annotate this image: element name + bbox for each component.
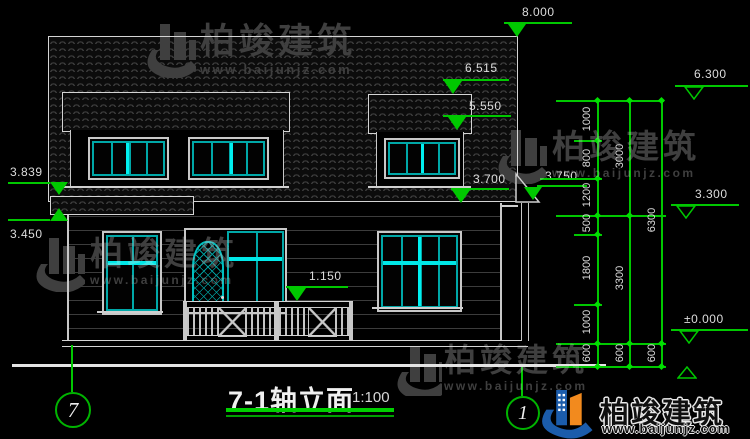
dimension-line (8, 182, 50, 184)
dimension-tick (594, 301, 601, 308)
right-corner-post (521, 203, 529, 341)
dimension-tick (626, 212, 633, 219)
x-panel (308, 307, 337, 337)
window (188, 137, 269, 180)
balusters (245, 307, 274, 335)
elevation-arrow (452, 190, 470, 203)
dim-label: 6300 (646, 198, 658, 242)
dim-label: 500 (581, 201, 593, 245)
dim-label: 1800 (581, 246, 593, 290)
dormer-left-sill (62, 186, 289, 188)
brand-logo-icon (534, 388, 598, 439)
window-glass (92, 141, 165, 176)
axis-bubble-7: 7 (55, 392, 91, 428)
elevation-arrow (448, 117, 466, 130)
brand-logo-url: www.baijunjz.com (602, 421, 730, 436)
window (377, 231, 462, 312)
watermark: 柏竣建筑 www.baijunjz.com (444, 344, 588, 393)
left-canopy (50, 196, 194, 215)
watermark-logo-icon (388, 342, 442, 396)
elevation-marker-canopy-top: 3.839 (10, 165, 43, 179)
drawing-title: 7-1轴立面 (228, 379, 354, 418)
window-sill (372, 307, 463, 309)
elevation-arrow (50, 182, 68, 195)
watermark (138, 20, 196, 83)
elevation-arrow (444, 81, 462, 94)
dimension-tick (594, 212, 601, 219)
elevation-marker-dormer-top: 6.515 (465, 61, 498, 75)
window-glass (381, 235, 458, 308)
dimension-tick (594, 97, 601, 104)
window-glass (388, 142, 456, 175)
elevation-drawing: 8.000 6.515 5.550 3.700 3.750 3.839 3.45… (0, 0, 750, 439)
dim-label: 3300 (614, 256, 626, 300)
elevation-arrow (508, 24, 526, 37)
elevation-marker-dormer-eave: 5.550 (469, 99, 502, 113)
title-underline (226, 408, 394, 412)
dimension-line (8, 219, 50, 221)
railing-post (183, 302, 187, 342)
dimension-tick (658, 340, 665, 347)
balusters (187, 307, 218, 335)
elevation-arrow-open (684, 86, 704, 100)
elevation-marker-porch-rail: 1.150 (309, 269, 342, 283)
dimension-tick (626, 363, 633, 370)
railing-post (349, 302, 353, 342)
watermark: 柏竣建筑 www.baijunjz.com (200, 24, 356, 77)
elevation-marker-right-top: 6.300 (694, 67, 727, 81)
axis-label: 1 (518, 402, 528, 425)
dimension-tick (626, 340, 633, 347)
elevation-arrow (288, 288, 306, 301)
watermark (388, 342, 442, 401)
balusters (335, 307, 349, 335)
x-panel (218, 307, 247, 337)
watermark: 柏竣建筑 www.baijunjz.com (90, 237, 238, 287)
dormer-left-roof (62, 92, 290, 132)
dimension-tick (626, 97, 633, 104)
elevation-arrow (50, 208, 68, 221)
watermark (489, 126, 547, 189)
axis-label: 7 (68, 398, 79, 423)
drawing-scale: 1:100 (352, 389, 390, 406)
extension-line (556, 100, 664, 102)
watermark-brand: 柏竣建筑 (90, 237, 238, 270)
watermark-brand: 柏竣建筑 (552, 130, 700, 163)
dim-label: 600 (614, 331, 626, 375)
dimension-tick (594, 340, 601, 347)
watermark: 柏竣建筑 www.baijunjz.com (552, 130, 700, 180)
window-sill (97, 311, 163, 313)
watermark-brand: 柏竣建筑 (200, 24, 356, 59)
dimension-tick (658, 97, 665, 104)
watermark-brand: 柏竣建筑 (444, 344, 588, 376)
watermark-url: www.baijunjz.com (552, 166, 700, 180)
watermark-logo-icon (27, 234, 85, 292)
elevation-marker-ground-zero: ±0.000 (684, 312, 724, 326)
window (88, 137, 169, 180)
watermark-logo-icon (489, 126, 547, 184)
balusters (279, 307, 308, 335)
elevation-marker-peak: 8.000 (522, 5, 555, 19)
dimension-tick (594, 231, 601, 238)
elevation-arrow-open (679, 330, 699, 344)
title-underline-thin (226, 415, 394, 417)
window (384, 138, 460, 179)
watermark-url: www.baijunjz.com (200, 62, 356, 77)
watermark-logo-icon (138, 20, 196, 78)
door-knob (221, 296, 224, 299)
watermark-url: www.baijunjz.com (90, 273, 238, 287)
dim-label: 600 (646, 331, 658, 375)
dimension-tick (658, 363, 665, 370)
watermark (27, 234, 85, 297)
railing-post (274, 302, 279, 342)
axis-line (71, 345, 73, 392)
elevation-marker-floor2: 3.300 (695, 187, 728, 201)
elevation-arrow-open (676, 205, 696, 219)
window-glass (192, 141, 265, 176)
elevation-arrow-open-up (677, 366, 697, 379)
